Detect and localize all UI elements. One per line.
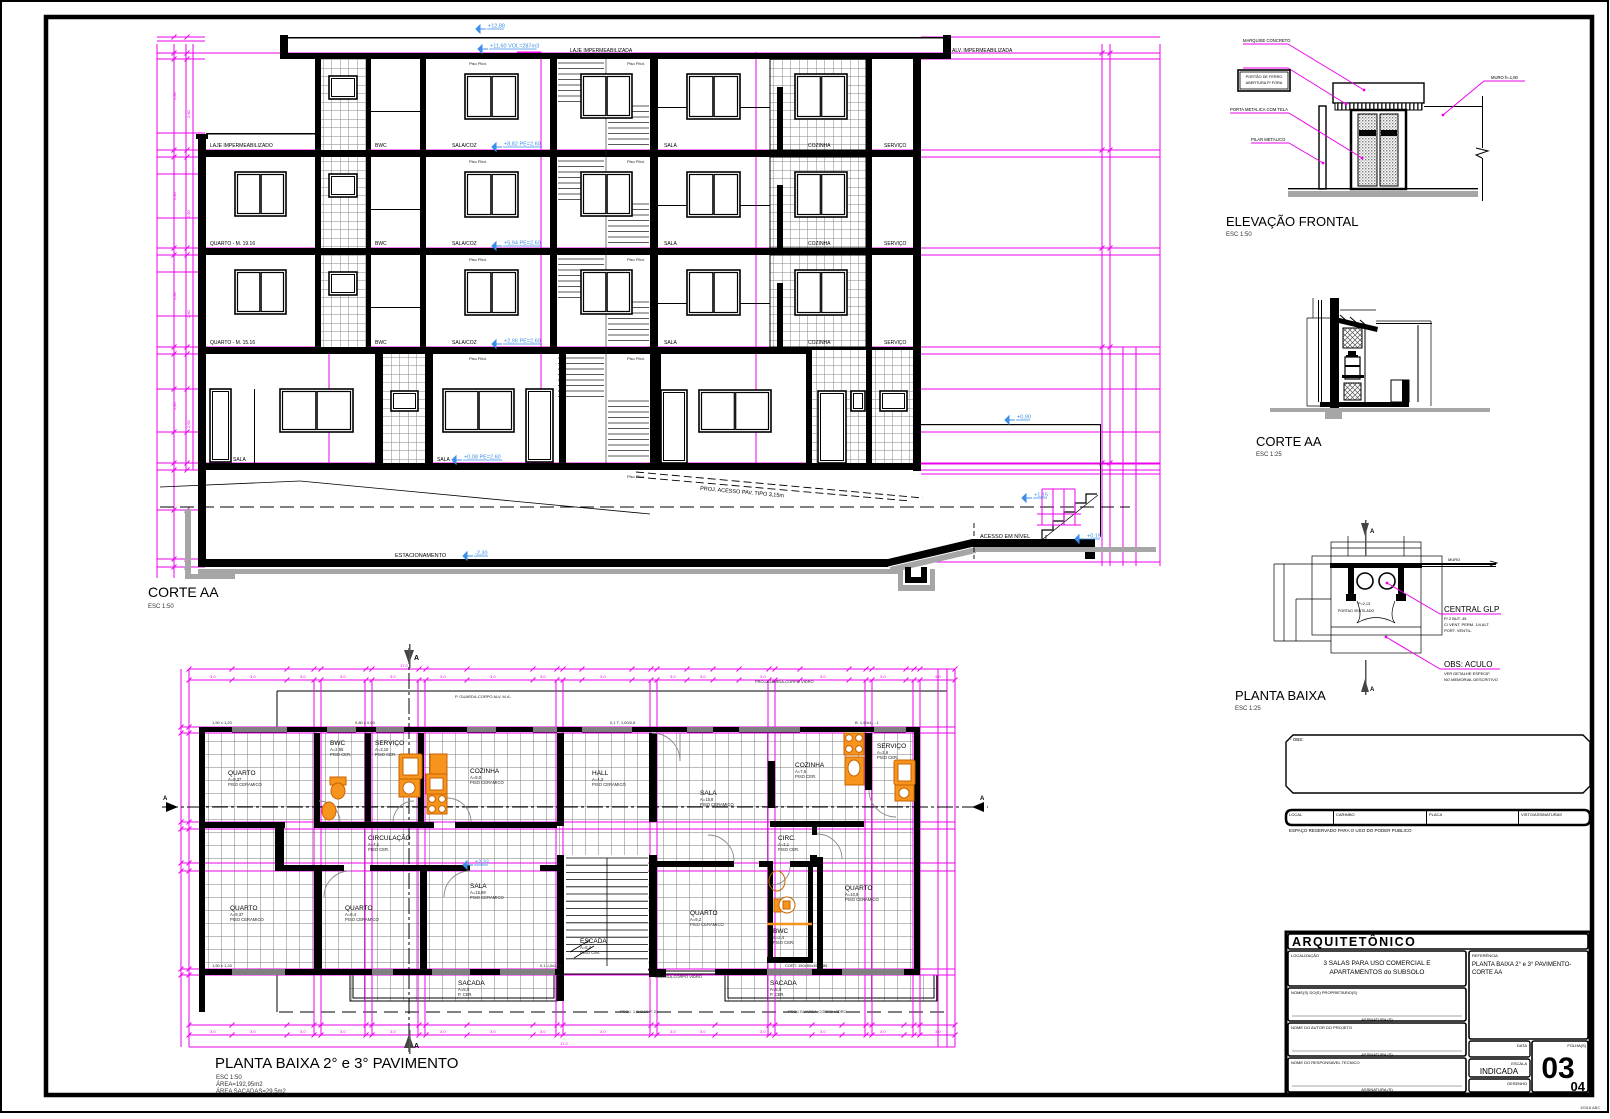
svg-text:ALV. IMPERMEABILIZADA: ALV. IMPERMEABILIZADA [952,48,1013,54]
svg-text:ASSINATURA (S): ASSINATURA (S) [1361,1017,1393,1022]
svg-text:ÁREA=192,95m2: ÁREA=192,95m2 [216,1081,263,1088]
svg-text:PORTÃO DE FERRO: PORTÃO DE FERRO [1246,74,1283,79]
svg-text:ESC 1:50: ESC 1:50 [1226,232,1252,238]
svg-text:3,0: 3,0 [440,1029,446,1034]
svg-text:2,80: 2,80 [172,401,177,410]
svg-text:PLANTA BAIXA: PLANTA BAIXA [1235,688,1326,703]
svg-text:2,60: 2,60 [186,419,191,428]
svg-text:A: A [1370,687,1375,693]
svg-text:3,0: 3,0 [670,1029,676,1034]
svg-text:2,80: 2,80 [172,91,177,100]
svg-text:2,80: 2,80 [172,191,177,200]
svg-text:SERVIÇO: SERVIÇO [884,143,907,149]
svg-text:3,0: 3,0 [490,674,496,679]
svg-text:ABERTURA P/ FORA: ABERTURA P/ FORA [1246,81,1283,85]
svg-text:SALA: SALA [664,340,677,346]
svg-text:3,0: 3,0 [670,674,676,679]
svg-text:QUARTO: QUARTO [230,905,258,912]
svg-text:CIRC.: CIRC. [778,835,796,842]
svg-text:PISO CERAMICO: PISO CERAMICO [345,917,379,922]
svg-text:Piso Pilot.: Piso Pilot. [627,159,645,164]
svg-text:PISO CERAMICO: PISO CERAMICO [470,780,504,785]
svg-text:P. CER.: P. CER. [770,992,785,997]
svg-text:COZINHA: COZINHA [808,340,831,346]
svg-text:3,0: 3,0 [540,1029,546,1034]
svg-text:PISO CER.: PISO CER. [877,755,898,760]
svg-text:A: A [1370,529,1375,535]
svg-text:PISO CIM.: PISO CIM. [580,950,600,955]
svg-text:COZINHA: COZINHA [470,768,500,775]
svg-text:FOLHA(S): FOLHA(S) [1567,1043,1586,1048]
svg-text:MURO: MURO [1448,557,1460,562]
svg-text:QUARTO - M. 15.16: QUARTO - M. 15.16 [210,340,255,346]
svg-text:3,0: 3,0 [700,674,706,679]
svg-text:PORT. VENTIL.: PORT. VENTIL. [1444,628,1472,633]
svg-text:PISO CER.: PISO CER. [773,940,794,945]
svg-text:GUARDA-CORPO VIDRO: GUARDA-CORPO VIDRO [655,974,702,979]
svg-text:BWC: BWC [375,241,387,247]
svg-text:PROJ.GUARDA-CORPO VIDRO: PROJ.GUARDA-CORPO VIDRO [788,1009,847,1014]
svg-text:SALA/COZ: SALA/COZ [452,143,477,149]
svg-text:NOME(S) DO(S) PROPRIETARIO(S): NOME(S) DO(S) PROPRIETARIO(S) [1291,990,1358,995]
svg-text:PLACA: PLACA [1429,812,1442,817]
svg-text:HALL: HALL [592,770,609,777]
svg-text:ESCADA: ESCADA [580,938,607,945]
svg-text:SACADA: SACADA [458,980,485,987]
svg-text:1,50 x 1,20: 1,50 x 1,20 [212,963,233,968]
svg-text:CORT. 150x50x35,0x85: CORT. 150x50x35,0x85 [785,963,828,968]
svg-text:PISO CERAMICO: PISO CERAMICO [845,897,879,902]
svg-text:PISO CER.: PISO CER. [795,774,816,779]
svg-text:3,0: 3,0 [440,674,446,679]
svg-text:17,2: 17,2 [400,663,409,668]
svg-text:Piso Pilot.: Piso Pilot. [469,356,487,361]
svg-text:3,0: 3,0 [600,1029,606,1034]
svg-text:3,0: 3,0 [210,1029,216,1034]
svg-text:2,60: 2,60 [186,309,191,318]
svg-text:A: A [980,796,985,802]
svg-text:ASSINATURA (S): ASSINATURA (S) [1361,1052,1393,1057]
svg-text:0,1 T. 1,00/0,8: 0,1 T. 1,00/0,8 [610,720,636,725]
svg-text:QUARTO: QUARTO [345,905,373,912]
svg-text:PROJ. 1,0x2,10 P. 21: PROJ. 1,0x2,10 P. 21 [620,1009,659,1014]
svg-text:3,0: 3,0 [300,674,306,679]
svg-text:PISO CERAMICO: PISO CERAMICO [228,782,262,787]
svg-text:3,0: 3,0 [340,1029,346,1034]
svg-text:A: A [414,1043,419,1050]
svg-text:COZINHA: COZINHA [795,762,825,769]
svg-text:DESENHO: DESENHO [1507,1081,1527,1086]
svg-text:ESC 1:50: ESC 1:50 [148,604,174,610]
svg-text:LOCAL: LOCAL [1289,812,1303,817]
svg-text:MURO h=1,80: MURO h=1,80 [1491,75,1519,80]
svg-text:PISO CER.: PISO CER. [778,847,799,852]
svg-text:SALA: SALA [470,883,487,890]
svg-text:DATA: DATA [1517,1043,1527,1048]
svg-text:1,50 x 1,20: 1,50 x 1,20 [212,720,233,725]
svg-text:PLANTA BAIXA 2° e 3° PAVIMENTO: PLANTA BAIXA 2° e 3° PAVIMENTO [215,1055,458,1072]
svg-text:ESC 1:50: ESC 1:50 [216,1075,242,1081]
svg-text:LAJE IMPERMEABILIZADA: LAJE IMPERMEABILIZADA [570,48,633,54]
svg-text:3,0: 3,0 [935,1029,941,1034]
svg-text:Piso Pilot.: Piso Pilot. [627,474,645,479]
svg-text:PORTAO VENTILADO: PORTAO VENTILADO [1338,609,1374,613]
svg-text:MARQUISE CONCRETO: MARQUISE CONCRETO [1243,38,1291,43]
svg-text:- OBS:: - OBS: [1290,737,1304,742]
svg-text:LOCALIZAÇÃO: LOCALIZAÇÃO [1291,953,1319,958]
svg-text:P=2,13: P=2,13 [1358,602,1370,606]
svg-text:ESC 1:25: ESC 1:25 [1256,452,1282,458]
svg-text:COZINHA: COZINHA [808,241,831,247]
svg-text:PISO CERAMICO: PISO CERAMICO [230,917,264,922]
svg-text:ÁREA SACADAS=29,5m2: ÁREA SACADAS=29,5m2 [216,1088,287,1095]
svg-text:BWC: BWC [773,928,788,935]
svg-text:LAJE IMPERMEABILIZADO: LAJE IMPERMEABILIZADO [210,143,273,149]
svg-text:04: 04 [1571,1079,1586,1094]
svg-text:QUARTO: QUARTO [228,770,256,777]
svg-text:PISO CER.: PISO CER. [330,752,351,757]
svg-text:3,0: 3,0 [250,1029,256,1034]
svg-text:CENTRAL GLP: CENTRAL GLP [1444,605,1499,614]
svg-text:Piso Pilot.: Piso Pilot. [627,61,645,66]
svg-text:3,0: 3,0 [300,1029,306,1034]
svg-text:C/ VENT. PERM. 1/4 ALT.: C/ VENT. PERM. 1/4 ALT. [1444,622,1490,627]
svg-text:3,0: 3,0 [935,674,941,679]
svg-text:NOME DO RESPONSAVEL TECNICO: NOME DO RESPONSAVEL TECNICO [1291,1060,1360,1065]
svg-text:ESTACIONAMENTO: ESTACIONAMENTO [395,553,447,559]
svg-text:3,0: 3,0 [820,674,826,679]
svg-text:3,0: 3,0 [210,674,216,679]
svg-text:BWC: BWC [330,740,345,747]
svg-text:3,0: 3,0 [600,674,606,679]
svg-text:3,0: 3,0 [490,1029,496,1034]
svg-text:OBS: ACULO: OBS: ACULO [1444,660,1492,669]
svg-text:3,0: 3,0 [540,674,546,679]
svg-text:2,60: 2,60 [186,209,191,218]
svg-text:3,0: 3,0 [250,674,256,679]
svg-text:SALA/COZ: SALA/COZ [452,340,477,346]
svg-text:QUARTO: QUARTO [845,885,873,892]
svg-text:3,0: 3,0 [760,1029,766,1034]
svg-text:REFERÊNCIA: REFERÊNCIA [1472,953,1498,958]
svg-text:NO MEMORIAL DESCRITIVO: NO MEMORIAL DESCRITIVO [1444,677,1498,682]
svg-text:SALA: SALA [233,457,246,463]
svg-text:PISO CERAMICO: PISO CERAMICO [470,895,504,900]
svg-text:P. CER.: P. CER. [458,992,473,997]
svg-text:VISTO/ASSINATURAS: VISTO/ASSINATURAS [1521,812,1562,817]
svg-text:17,2: 17,2 [560,1041,569,1046]
svg-text:A: A [163,796,168,802]
svg-text:VER DETALHE ESPECIF.: VER DETALHE ESPECIF. [1444,671,1490,676]
svg-text:PORTA METALICA COM TELA: PORTA METALICA COM TELA [1230,107,1288,112]
svg-text:ASSINATURA (S): ASSINATURA (S) [1361,1087,1393,1092]
svg-text:A: A [414,655,419,662]
svg-text:Piso Pilot.: Piso Pilot. [469,159,487,164]
svg-text:CARIMBO: CARIMBO [1336,812,1355,817]
svg-text:Piso Pilot.: Piso Pilot. [469,61,487,66]
svg-text:CIRCULAÇÃO: CIRCULAÇÃO [368,833,411,842]
svg-text:19318 ABC: 19318 ABC [1580,1105,1600,1110]
svg-text:0,80 x 0,60: 0,80 x 0,60 [355,720,376,725]
svg-text:3,0: 3,0 [340,674,346,679]
svg-text:ESCALA: ESCALA [1511,1061,1527,1066]
svg-text:APARTAMENTOS do SUBSOLO: APARTAMENTOS do SUBSOLO [1330,969,1425,976]
svg-text:COZINHA: COZINHA [808,143,831,149]
svg-text:Piso Pilot.: Piso Pilot. [627,257,645,262]
svg-text:SERVIÇO: SERVIÇO [884,241,907,247]
svg-text:SERVIÇO: SERVIÇO [375,740,404,747]
svg-text:CORTE AA: CORTE AA [1256,434,1322,449]
svg-text:3,0: 3,0 [700,1029,706,1034]
svg-text:3 SALAS PARA USO COMERCIAL E: 3 SALAS PARA USO COMERCIAL E [1323,960,1431,967]
svg-text:SERVIÇO: SERVIÇO [877,743,906,750]
svg-text:ESC 1:25: ESC 1:25 [1235,706,1261,712]
svg-text:QUARTO - M. 19.16: QUARTO - M. 19.16 [210,241,255,247]
svg-text:QUARTO: QUARTO [690,910,718,917]
svg-text:ESPAÇO RESERVADO PARA O USO DO: ESPAÇO RESERVADO PARA O USO DO PODER PUB… [1289,828,1412,833]
svg-text:BWC: BWC [375,340,387,346]
svg-text:SALA/COZ: SALA/COZ [452,241,477,247]
svg-text:Piso Pilot.: Piso Pilot. [627,356,645,361]
svg-text:Piso Pilot.: Piso Pilot. [469,257,487,262]
svg-text:SALA: SALA [664,241,677,247]
svg-text:CORTE AA: CORTE AA [1472,970,1502,976]
svg-text:ACESSO EM NÍVEL: ACESSO EM NÍVEL [980,533,1030,540]
svg-text:PISO CER.: PISO CER. [368,847,389,852]
svg-text:3,0: 3,0 [390,1029,396,1034]
svg-text:SALA: SALA [664,143,677,149]
svg-text:SACADA: SACADA [770,980,797,987]
svg-text:PROJ.GUARDA-CORPO VIDRO: PROJ.GUARDA-CORPO VIDRO [755,679,814,684]
svg-text:3,0: 3,0 [880,674,886,679]
svg-text:P/ 2 BUT. 45: P/ 2 BUT. 45 [1444,616,1467,621]
svg-text:CORTE AA: CORTE AA [148,584,219,600]
svg-text:PISO CERAMICO: PISO CERAMICO [592,782,626,787]
svg-text:PISO CERAMICO: PISO CERAMICO [690,922,724,927]
svg-text:PLANTA BAIXA 2° e 3° PAVIMENTO: PLANTA BAIXA 2° e 3° PAVIMENTO- [1472,962,1571,968]
svg-text:PISO CER.: PISO CER. [375,752,396,757]
svg-text:3,0: 3,0 [390,674,396,679]
svg-text:P. GUARDA-CORPO ALV. M.A.: P. GUARDA-CORPO ALV. M.A. [455,694,511,699]
svg-text:3,0: 3,0 [880,1029,886,1034]
svg-text:ELEVAÇÃO FRONTAL: ELEVAÇÃO FRONTAL [1226,214,1358,229]
svg-text:NOME DO AUTOR DO PROJETO: NOME DO AUTOR DO PROJETO [1291,1025,1352,1030]
svg-text:SALA: SALA [700,790,717,797]
svg-text:INDICADA: INDICADA [1480,1067,1519,1076]
svg-text:SERVIÇO: SERVIÇO [884,340,907,346]
svg-text:PISO CERAMICO: PISO CERAMICO [700,802,734,807]
svg-text:B. 1,50x1,...1: B. 1,50x1,...1 [855,720,879,725]
svg-text:2,80: 2,80 [172,291,177,300]
svg-text:0,1 J,0x2,10: 0,1 J,0x2,10 [540,963,563,968]
svg-text:ARQUITETÔNICO: ARQUITETÔNICO [1292,934,1416,949]
svg-text:BWC: BWC [375,143,387,149]
svg-text:SALA: SALA [437,457,450,463]
svg-text:3,0: 3,0 [820,1029,826,1034]
svg-text:PILAR METALICO: PILAR METALICO [1251,137,1286,142]
svg-text:2,60: 2,60 [186,109,191,118]
